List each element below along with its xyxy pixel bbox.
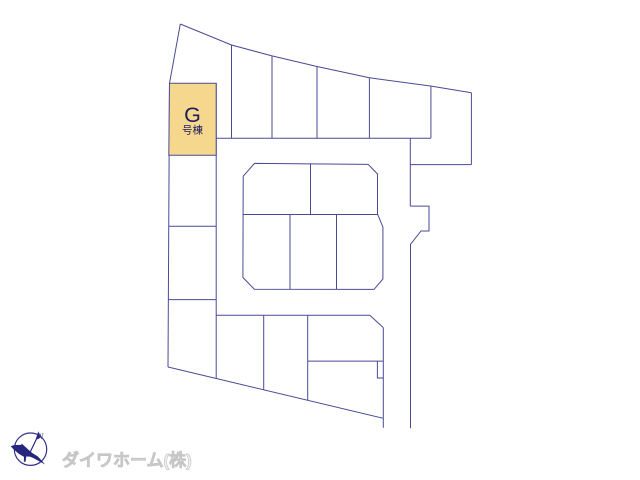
svg-text:号棟: 号棟 (182, 124, 203, 137)
svg-text:G: G (184, 103, 201, 127)
svg-text:ダイワホーム(株): ダイワホーム(株) (62, 450, 192, 470)
